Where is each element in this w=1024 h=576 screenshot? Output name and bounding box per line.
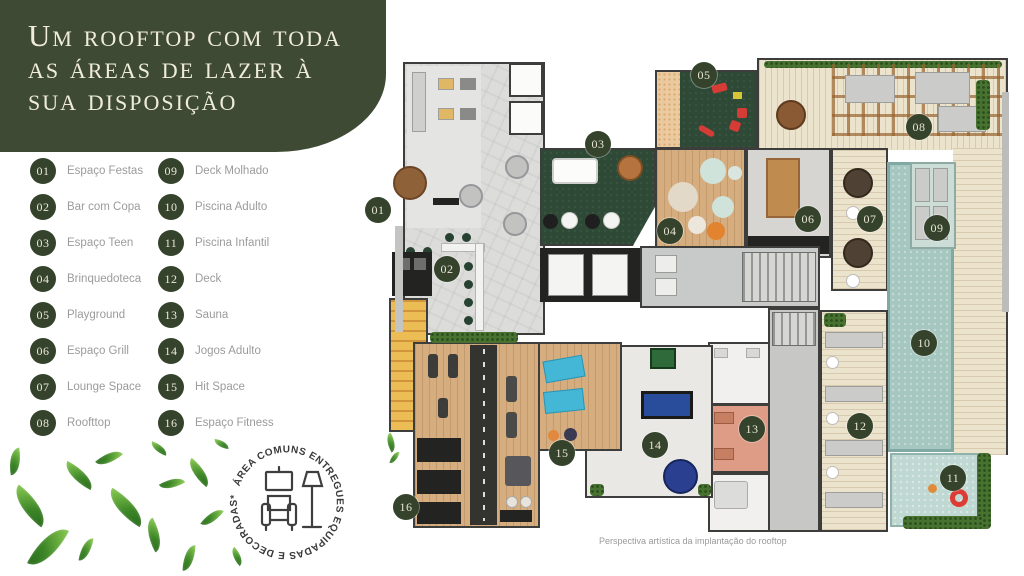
plan-caption: Perspectiva artística da implantação do … — [599, 536, 787, 546]
stamp-circular-text: ÁREA COMUNS ENTREGUES EQUIPADAS E DECORA… — [229, 444, 345, 560]
plan-marker-05: 05 — [691, 62, 717, 88]
plan-marker-10: 10 — [911, 330, 937, 356]
plan-marker-11: 11 — [940, 465, 966, 491]
plan-marker-02: 02 — [434, 256, 460, 282]
plan-marker-08: 08 — [906, 114, 932, 140]
plan-marker-15: 15 — [549, 440, 575, 466]
furnished-areas-stamp: ÁREA COMUNS ENTREGUES EQUIPADAS E DECORA… — [222, 436, 354, 568]
page: Um rooftop com toda as áreas de lazer à … — [0, 0, 1024, 576]
plan-marker-09: 09 — [924, 215, 950, 241]
plan-markers-layer: 01020304050607080910111213141516 — [0, 0, 1024, 576]
plan-marker-03: 03 — [585, 131, 611, 157]
plan-marker-01: 01 — [365, 197, 391, 223]
plan-marker-13: 13 — [739, 416, 765, 442]
plan-marker-12: 12 — [847, 413, 873, 439]
plan-marker-04: 04 — [657, 218, 683, 244]
plan-marker-16: 16 — [393, 494, 419, 520]
plan-marker-07: 07 — [857, 206, 883, 232]
plan-marker-06: 06 — [795, 206, 821, 232]
plan-marker-14: 14 — [642, 432, 668, 458]
armchair-lamp-icon — [262, 467, 322, 530]
